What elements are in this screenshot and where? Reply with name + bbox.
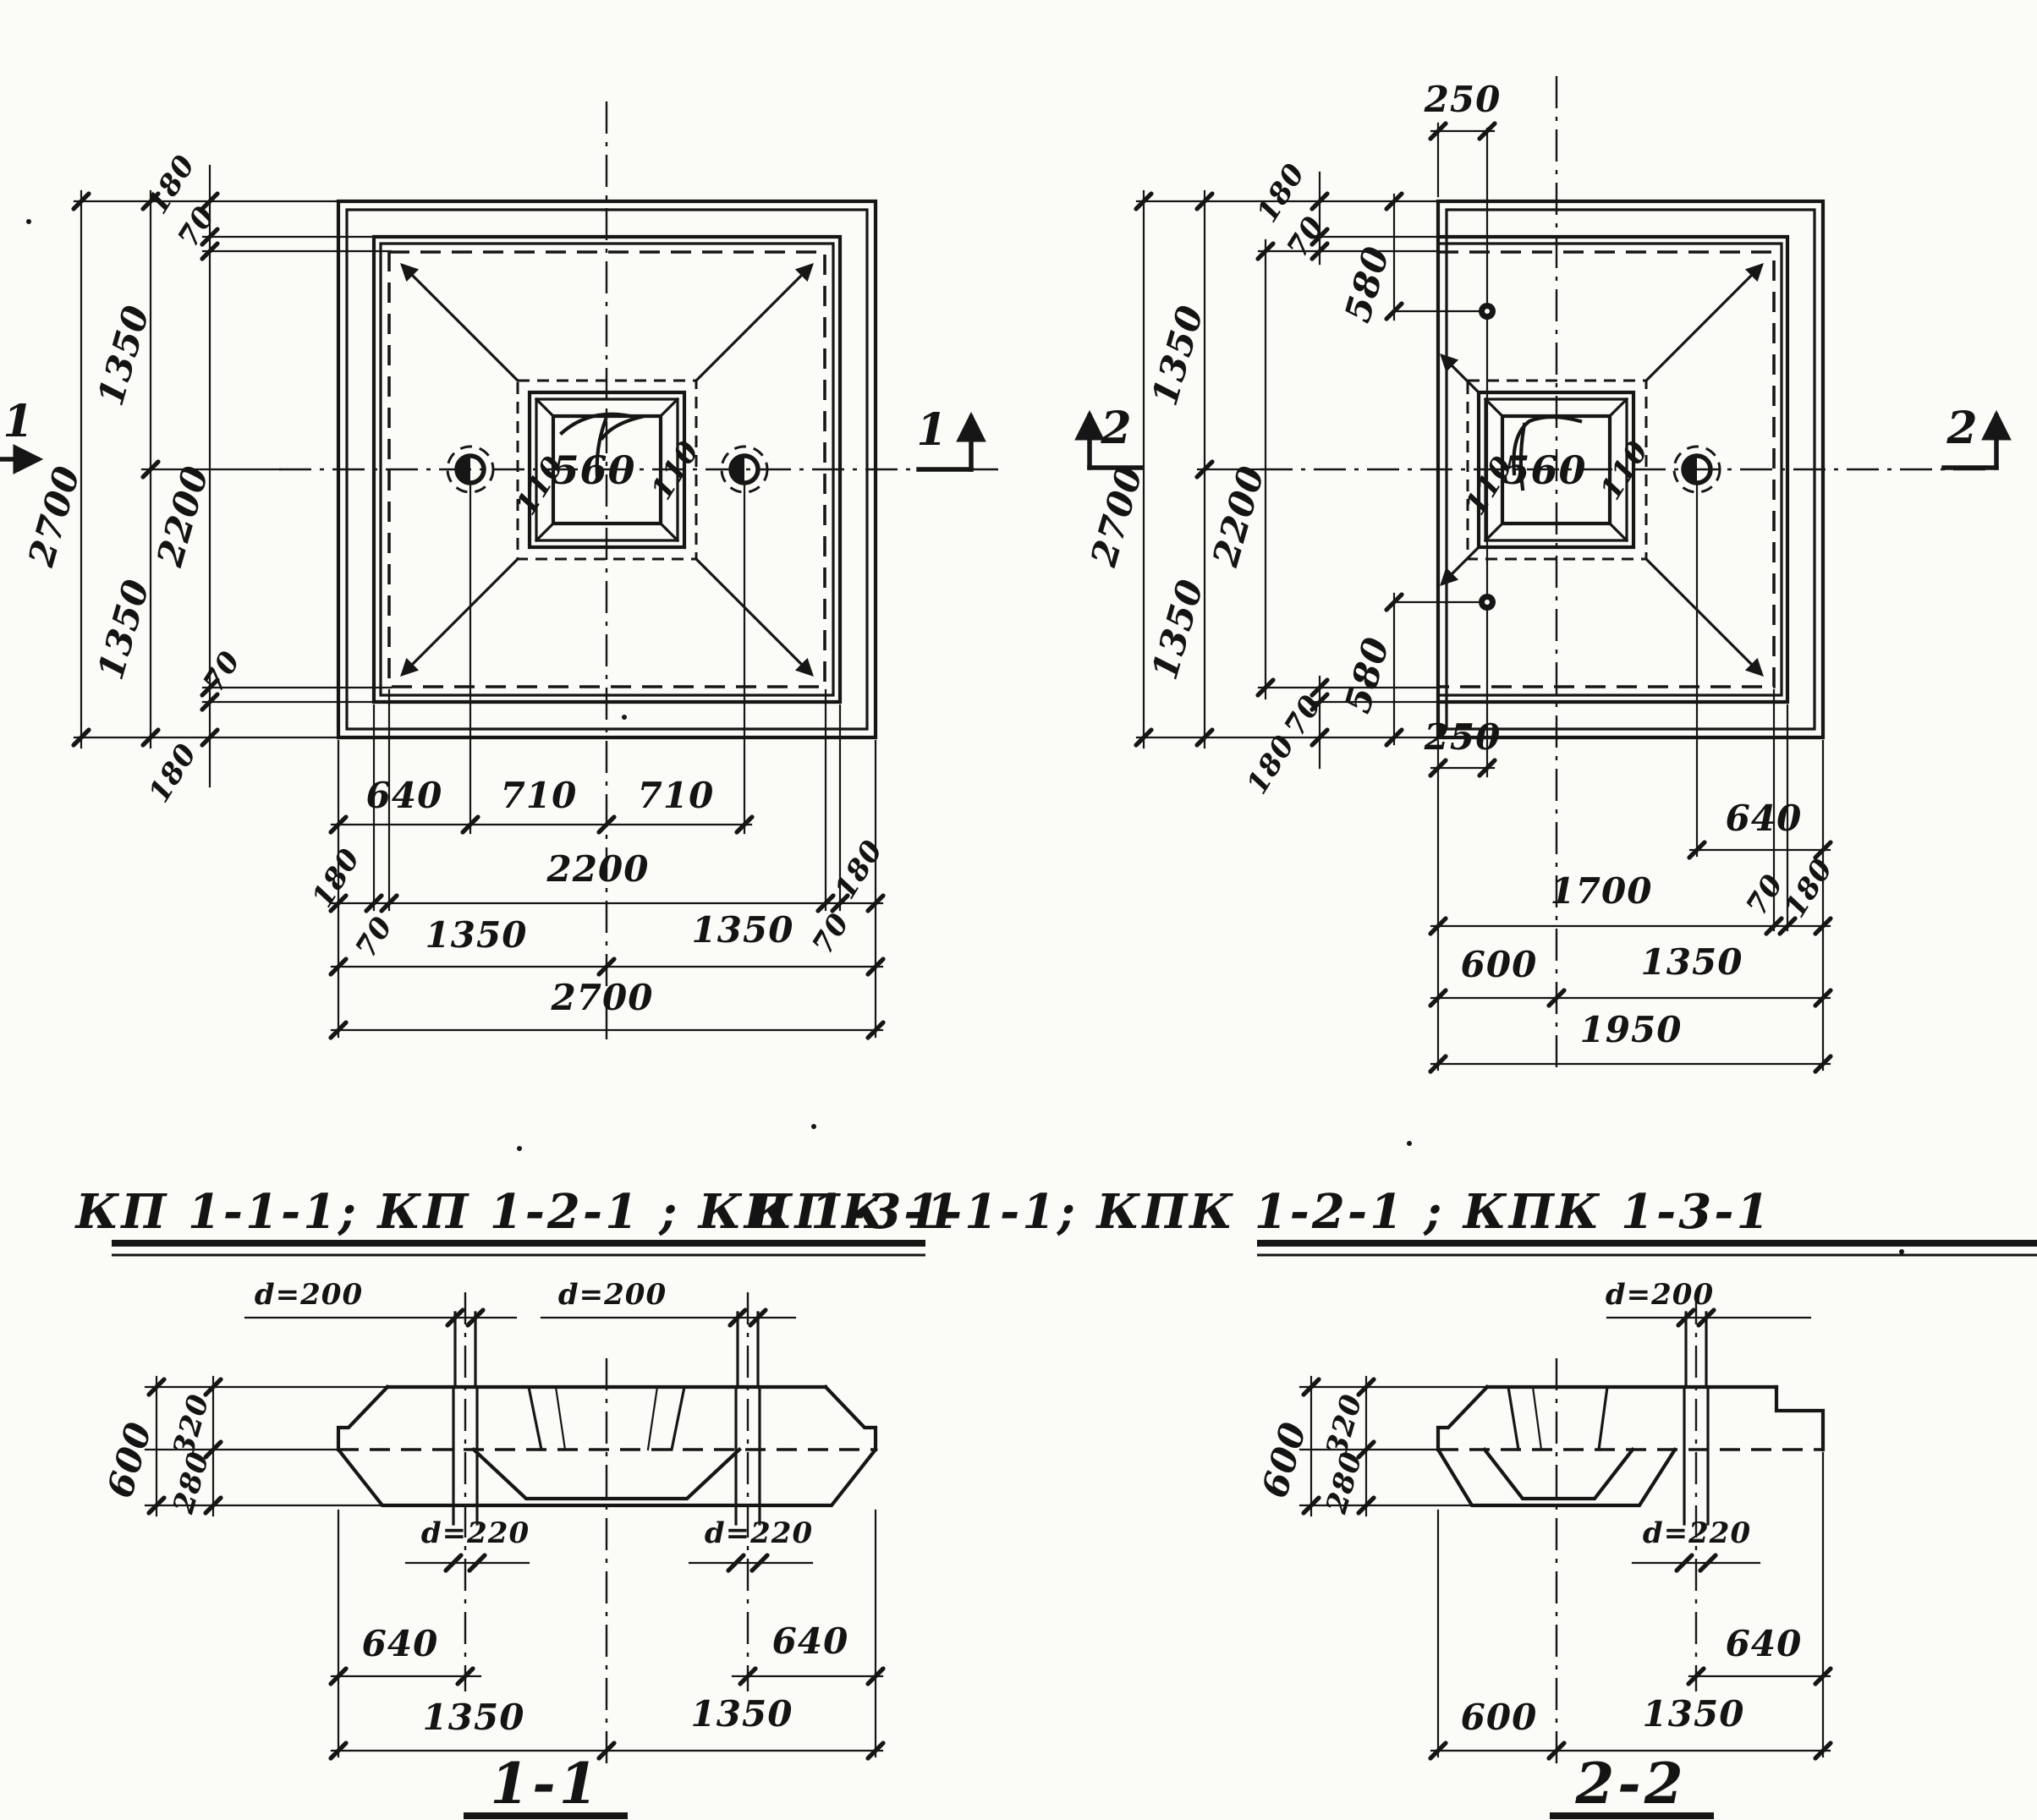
dim-half: 1350 [691,1693,793,1735]
titles: КП 1-1-1; КП 1-2-1 ; КП 1-3-1 КПК 1-1-1;… [74,1184,2037,1255]
section-mark-2-right: 2 [1946,403,1978,454]
dim-total-horizontal: 1950 [1580,1009,1683,1050]
blueprint-sheet: 560 110 110 1 1 2700 [0,0,2037,1820]
dim-loop-spacing: 710 [501,775,578,816]
dim-mid: 2200 [149,461,217,572]
right-plan-lifting-loop [1674,447,1720,856]
dim-ledge: 70 [1740,869,1791,922]
left-plan-dims-left: 2700 1350 1350 180 70 2200 70 180 [20,149,391,809]
hip-line [1646,266,1761,381]
dim-half: 1350 [90,574,157,684]
hip-line [403,559,518,674]
dim-hole-offset: 640 [362,1623,439,1664]
dim-loop-offset: 640 [366,775,443,816]
hole-diameter-label: d=220 [421,1516,530,1550]
section-mark-1-left: 1 [3,396,34,447]
hole-diameter-label: d=220 [1643,1516,1751,1550]
hip-line [696,559,811,674]
dim-height-total: 600 [1254,1417,1315,1503]
dim-anchor-offset: 580 [1337,633,1397,718]
section-1-1-dims: d=200 d=200 d=220 d=220 600 320 280 640 … [99,1278,883,1758]
hip-line [1646,559,1761,674]
hip-line [696,266,811,381]
dim-height-total: 600 [99,1417,160,1503]
dim-ledge: 70 [806,907,857,961]
dim-axis-right: 1350 [1643,1693,1745,1735]
section-1-1-label: 1-1 [490,1751,601,1817]
dim-edge: 180 [1240,729,1302,800]
dim-mid: 2200 [546,848,650,890]
dim-hole-offset: 640 [772,1620,849,1662]
section-2-2-dims: d=200 d=220 600 320 280 640 600 1350 [1254,1278,1831,1758]
section-2-2: d=200 d=220 600 320 280 640 600 1350 2-2 [1254,1278,1831,1817]
right-plan-dims-top-bottom: 250 250 640 1700 70 180 600 1350 1950 [1424,79,1841,1072]
section-2-2-body [1438,1387,1823,1505]
hole-diameter-label: d=220 [705,1516,813,1550]
right-plan: 560 110 110 2 2 [1083,76,1996,1072]
dim-total-horizontal: 2700 [551,977,654,1018]
dim-offset-bottom: 250 [1424,716,1502,758]
dim-half: 1350 [423,1697,525,1738]
dim-ledge: 70 [1281,211,1331,264]
hip-line [403,266,518,381]
dim-mid: 2200 [1205,461,1273,572]
dim-half: 1350 [692,909,794,951]
right-plan-centerlines [1260,76,1990,1071]
left-plan: 560 110 110 1 1 2700 [2,101,998,1042]
section-2-2-label: 2-2 [1574,1751,1686,1817]
dimension-ticks [1304,1310,1831,1758]
dim-edge: 180 [828,834,890,905]
section-mark-1-right: 1 [916,404,947,456]
section-mark-2-left: 2 [1100,403,1132,454]
dim-half: 1350 [426,914,528,956]
pipe-diameter-label: d=200 [558,1278,667,1312]
dim-axis-right: 1350 [1641,941,1743,983]
dim-total-vertical: 2700 [1083,461,1151,572]
pipe-diameter-label: d=200 [1606,1278,1714,1312]
dim-axis-left: 600 [1461,944,1538,985]
dim-total-vertical: 2700 [20,461,89,572]
right-plan-dims-left: 2700 1350 1350 2200 180 70 580 70 180 58… [1083,157,1438,800]
dim-span: 1700 [1551,870,1653,912]
title-kpk: КПК 1-1-1; КПК 1-2-1 ; КПК 1-3-1 [748,1184,1772,1240]
dim-hole-offset: 640 [1726,1623,1803,1664]
section-1-1: d=200 d=200 d=220 d=220 600 320 280 640 … [99,1278,883,1817]
dim-half: 1350 [1144,574,1211,684]
left-plan-dims-bottom: 640 710 710 180 2200 180 70 70 1350 1350… [305,690,890,1038]
dim-loop-offset: 640 [1726,798,1803,839]
foundation-drawing: 560 110 110 1 1 2700 [0,0,2037,1820]
dim-axis-left: 600 [1461,1697,1538,1738]
dim-ledge: 70 [349,911,400,964]
pipe-diameter-label: d=200 [255,1278,363,1312]
dim-half: 1350 [90,300,157,410]
dim-offset-top: 250 [1424,79,1502,120]
dim-loop-spacing: 710 [638,775,715,816]
dim-half: 1350 [1144,300,1211,410]
